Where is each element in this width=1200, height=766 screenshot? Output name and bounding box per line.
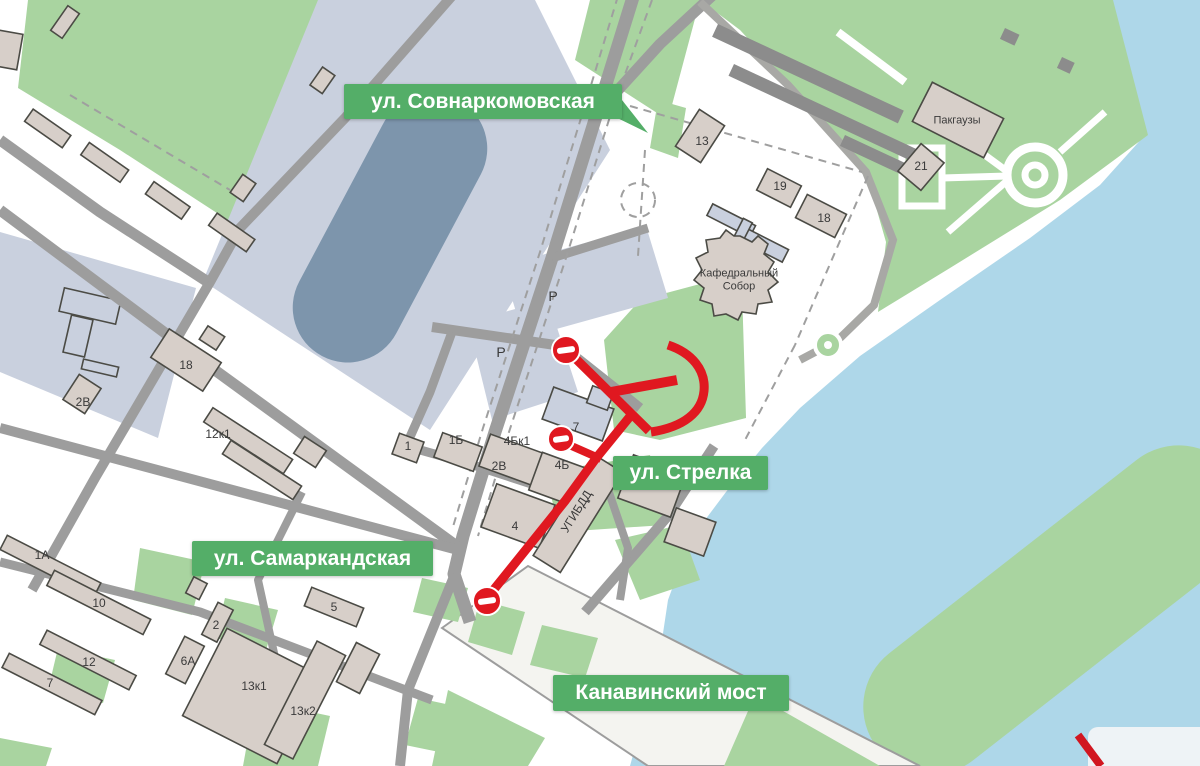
building-label: 12: [82, 656, 95, 670]
building-label: 18: [817, 212, 830, 226]
building-label: 13к1: [241, 680, 266, 694]
no-entry-sign-icon: [473, 587, 501, 615]
building-label: P: [548, 288, 557, 304]
no-entry-sign-icon: [552, 336, 580, 364]
building-label: 10: [92, 597, 105, 611]
street-label-sovnarkomovskaya: ул. Совнаркомовская: [344, 84, 622, 119]
building-label: 5: [331, 601, 338, 615]
building-label: 18: [179, 359, 192, 373]
building-label: 19: [773, 180, 786, 194]
building-label: 4: [512, 520, 519, 534]
building-label: 1А: [35, 549, 50, 563]
building-label: 4Бк1: [504, 435, 530, 449]
building-label: 2: [213, 619, 220, 633]
roundabout: [815, 332, 841, 358]
building-label: 7: [573, 421, 580, 435]
building-label: P: [496, 344, 505, 360]
building-label: 21: [914, 160, 927, 174]
warning-card: [1078, 727, 1200, 766]
building-label: 13к2: [290, 705, 315, 719]
street-label-strelka: ул. Стрелка: [613, 456, 768, 490]
building-label: 7: [47, 677, 54, 691]
building-label: 6А: [181, 655, 196, 669]
building-label: 1: [405, 440, 412, 454]
street-label-kanavinsky-bridge: Канавинский мост: [553, 675, 789, 711]
building-label: 2В: [76, 396, 91, 410]
map-canvas[interactable]: ул. Совнаркомовская ул. Стрелка ул. Сама…: [0, 0, 1200, 766]
building-label: 13: [695, 135, 708, 149]
building-label: 2В: [492, 460, 507, 474]
building-label: 4Б: [555, 459, 570, 473]
street-label-samarkandskaya: ул. Самаркандская: [192, 541, 433, 576]
building-label: Кафедральный Собор: [700, 267, 778, 292]
building-label: Пакгаузы: [933, 115, 980, 128]
no-entry-sign-icon: [548, 426, 574, 452]
building-label: 12к1: [205, 428, 230, 442]
building-label: 1Б: [449, 434, 464, 448]
